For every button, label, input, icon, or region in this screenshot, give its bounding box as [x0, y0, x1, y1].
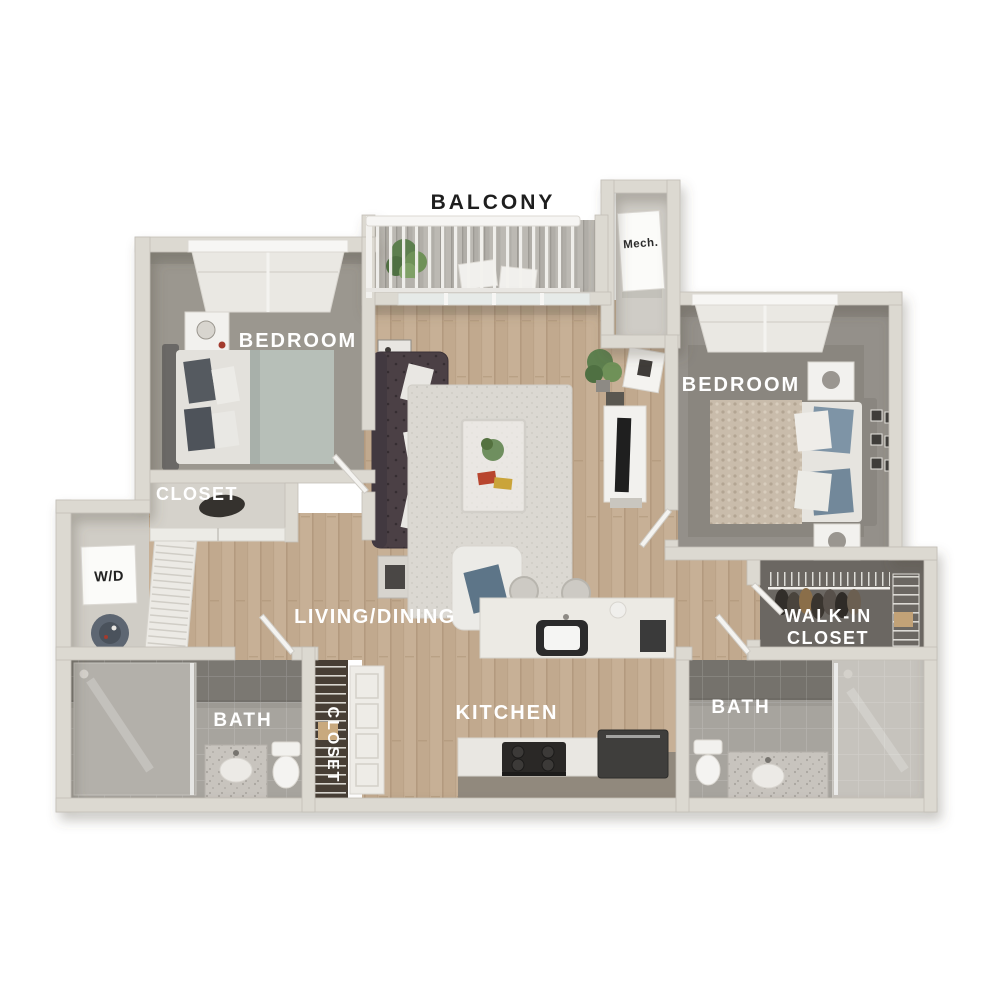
shower-head: [844, 670, 853, 679]
bedroom-right-label: BEDROOM: [682, 374, 800, 396]
wd-label: W/D: [94, 568, 124, 585]
small-appliance: [640, 620, 666, 652]
walk-in-label-line1: WALK-IN: [784, 606, 871, 626]
shower-head: [80, 670, 89, 679]
shower-glass: [190, 663, 194, 795]
sink-basin: [752, 764, 784, 788]
refrigerator: [598, 730, 668, 778]
bath-right-label: BATH: [711, 697, 770, 718]
tv: [615, 418, 632, 492]
wire-unit: [893, 574, 919, 646]
window-bedroom-left: [188, 240, 348, 312]
floor-plan-rendering: BALCONY Mech. BEDROOM BEDROOM CLOSET W/D…: [0, 0, 1000, 1000]
lamp: [822, 371, 840, 389]
lounge-chair: [458, 260, 497, 291]
window-bedroom-right: [692, 294, 838, 352]
window-frame: [692, 294, 838, 305]
table-plant-leaf: [481, 438, 493, 450]
mech-label: Mech.: [623, 237, 659, 251]
textured-blanket: [710, 400, 802, 524]
lamp: [197, 321, 215, 339]
floor-plan-page: BALCONY Mech. BEDROOM BEDROOM CLOSET W/D…: [0, 0, 1000, 1000]
hall-closet-label: CLOSET: [324, 707, 341, 784]
accent-table: [623, 347, 665, 393]
faucet: [765, 757, 771, 763]
bath-left-label: BATH: [213, 710, 272, 731]
basket-inner: [99, 622, 121, 644]
toilet: [694, 740, 722, 785]
pillow-light: [794, 410, 832, 451]
living-dining-label: LIVING/DINING: [294, 606, 456, 628]
blanket-fold: [250, 350, 260, 464]
console-books: [610, 498, 642, 508]
blanket: [256, 350, 334, 464]
basket-item: [112, 626, 117, 631]
closet-rod: [768, 587, 890, 590]
sliding-glass-door: [398, 293, 590, 305]
window-frame: [188, 240, 348, 252]
kitchen-counter-run: [458, 730, 688, 798]
mech-unit: [617, 211, 664, 298]
kitchen-label: KITCHEN: [456, 702, 559, 724]
sink-basin: [220, 758, 252, 782]
shower-glass: [834, 663, 838, 795]
railing-top: [366, 216, 580, 226]
bedroom-left-label: BEDROOM: [239, 330, 357, 352]
closet-sliding-doors: [150, 528, 285, 541]
pillow-light: [794, 470, 832, 511]
wire-shelf: [768, 572, 890, 586]
book: [493, 477, 512, 490]
railing-bottom: [366, 288, 580, 292]
paneled-door: [350, 666, 384, 794]
toilet: [272, 742, 300, 788]
faucet: [233, 750, 239, 756]
storage-box: [894, 612, 913, 627]
balcony-label: BALCONY: [431, 191, 556, 214]
stove: [502, 742, 566, 776]
side-table: [378, 556, 412, 598]
coffee-table: [462, 420, 525, 512]
tv-console: [604, 392, 646, 508]
bowl: [610, 602, 626, 618]
sink-basin: [544, 626, 580, 650]
book: [477, 471, 496, 485]
pillow-light: [212, 410, 240, 448]
pillow-dark: [184, 407, 215, 452]
walk-in-label-line2: CLOSET: [787, 628, 869, 648]
decor-item: [219, 342, 226, 349]
speaker: [606, 392, 624, 406]
closet-left-label: CLOSET: [156, 484, 238, 504]
faucet: [563, 614, 569, 620]
basket-item: [104, 635, 108, 639]
